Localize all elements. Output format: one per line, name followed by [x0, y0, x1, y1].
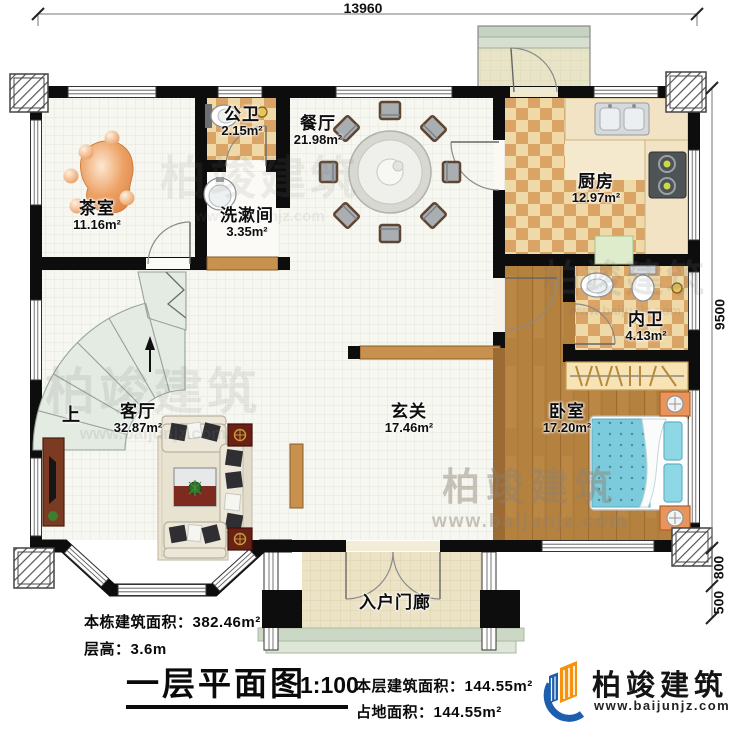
side-table-top	[228, 424, 252, 446]
floor-plan-page: 柏竣建筑 www.baijunjz.com 柏竣建筑 www.baijunjz.…	[0, 0, 750, 730]
land-area-note: 占地面积：144.55m²	[356, 701, 502, 722]
pillow	[664, 464, 682, 502]
dimension-right-main: 9500	[713, 285, 728, 345]
half-wall-foyer	[360, 346, 500, 359]
half-wall-living	[290, 444, 303, 508]
side-table-bottom	[228, 528, 252, 550]
room-area: 3.35m²	[201, 225, 293, 240]
room-area: 17.46m²	[364, 421, 454, 436]
kitchen-fridge	[595, 236, 633, 264]
room-name: 洗漱间	[201, 206, 293, 225]
room-label-inner-bath: 内卫 4.13m²	[600, 310, 692, 344]
logo-url: www.baijunjz.com	[594, 698, 730, 713]
room-label-kitchen: 厨房 12.97m²	[550, 172, 642, 206]
dimension-right-steps: 500	[712, 582, 727, 624]
room-name: 玄关	[364, 402, 454, 421]
title-underline	[126, 705, 348, 709]
room-name: 内卫	[600, 310, 692, 329]
floor-area-note: 本层建筑面积：144.55m²	[356, 675, 533, 696]
porch-pillar-right	[480, 590, 520, 628]
nightstand-top	[660, 392, 690, 416]
floor-porch	[302, 552, 484, 628]
sofa-right	[220, 444, 252, 532]
porch-pillar-left	[262, 590, 302, 628]
kitchen-stove	[649, 152, 686, 198]
room-area: 17.20m²	[522, 421, 612, 436]
room-area: 32.87m²	[92, 421, 184, 436]
logo-icon	[547, 661, 582, 718]
bedroom-left-wall	[493, 348, 505, 540]
wardrobe	[566, 362, 688, 390]
plan-title: 一层平面图	[126, 657, 306, 705]
room-area: 12.97m²	[550, 191, 642, 206]
kitchen-sink	[595, 103, 649, 135]
room-label-living: 客厅 32.87m²	[92, 402, 184, 436]
stairs-up-label: 上	[62, 401, 80, 427]
room-name: 客厅	[92, 402, 184, 421]
room-label-bedroom: 卧室 17.20m²	[522, 402, 612, 436]
room-name: 入户门廊	[328, 593, 462, 612]
half-wall-washroom	[207, 257, 278, 270]
room-name: 茶室	[52, 199, 142, 218]
room-label-dining: 餐厅 21.98m²	[272, 114, 364, 148]
room-area: 21.98m²	[272, 133, 364, 148]
building-total-area-note: 本栋建筑面积：382.46m²	[84, 611, 261, 632]
room-label-washroom: 洗漱间 3.35m²	[201, 206, 293, 240]
room-name: 卧室	[522, 402, 612, 421]
sofa-bottom	[164, 522, 226, 558]
room-area: 4.13m²	[600, 329, 692, 344]
nightstand-bottom	[660, 506, 690, 530]
room-area: 11.16m²	[52, 218, 142, 233]
tv-cabinet	[43, 438, 64, 526]
dimension-top: 13960	[333, 0, 393, 16]
coffee-table	[174, 468, 216, 506]
room-label-foyer: 玄关 17.46m²	[364, 402, 454, 436]
door-knob	[672, 283, 682, 293]
room-name: 餐厅	[272, 114, 364, 133]
pillow	[664, 422, 682, 460]
room-label-tea-room: 茶室 11.16m²	[52, 199, 142, 233]
floor-height-note: 层高：3.6m	[84, 638, 167, 659]
room-label-entry-porch: 入户门廊	[328, 593, 462, 612]
plan-scale: 1:100	[300, 672, 359, 699]
room-name: 厨房	[550, 172, 642, 191]
